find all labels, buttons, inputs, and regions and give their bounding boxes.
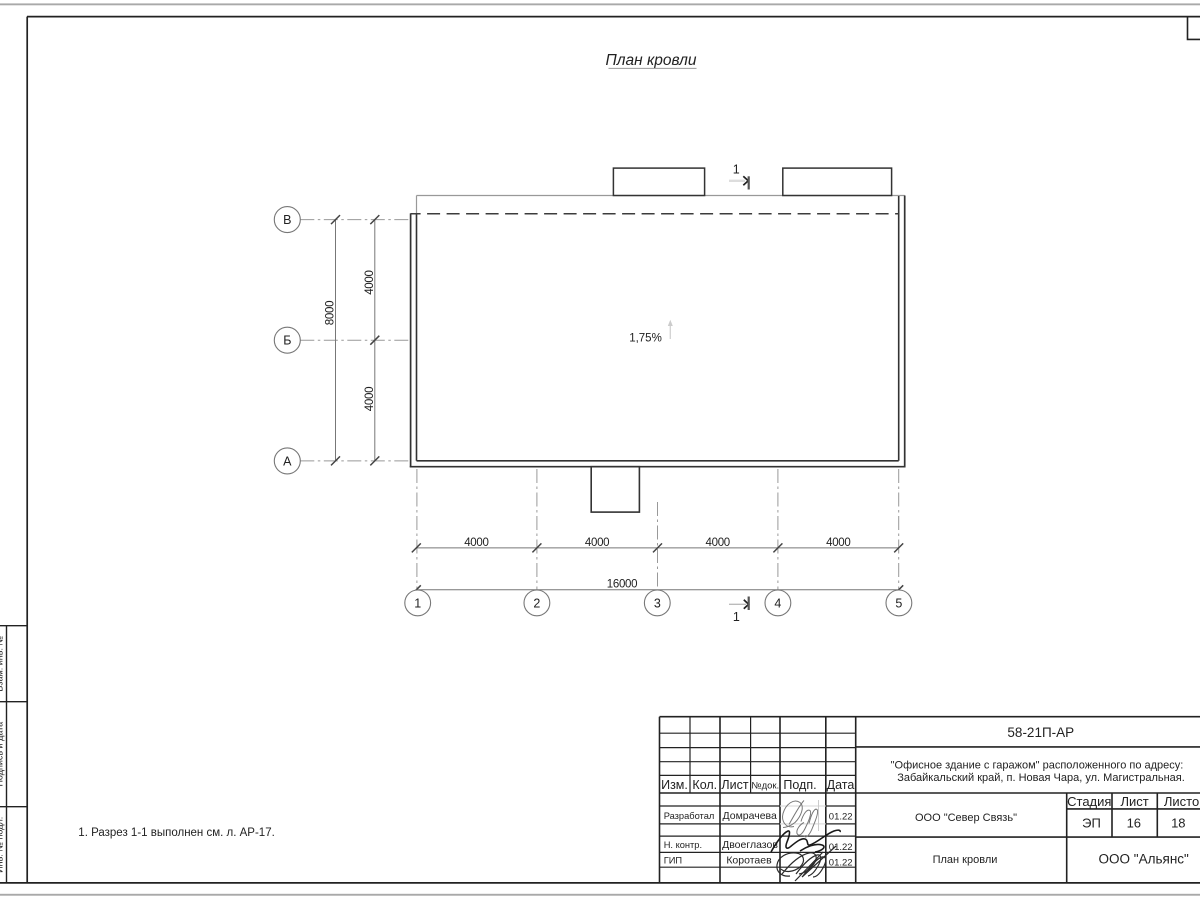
svg-text:4: 4	[774, 596, 781, 610]
svg-text:01.22: 01.22	[829, 812, 853, 823]
svg-text:План кровли: План кровли	[933, 854, 998, 866]
svg-text:В: В	[283, 213, 291, 227]
svg-text:ООО "Север Связь": ООО "Север Связь"	[915, 812, 1017, 824]
svg-text:16000: 16000	[607, 578, 637, 590]
svg-text:Забайкальский край, п. Новая Ч: Забайкальский край, п. Новая Чара, ул. М…	[897, 772, 1185, 784]
svg-text:01.22: 01.22	[829, 857, 853, 868]
svg-text:1: 1	[733, 610, 740, 624]
svg-text:1: 1	[733, 163, 740, 177]
svg-text:16: 16	[1127, 815, 1141, 830]
svg-text:Разработал: Разработал	[664, 811, 715, 821]
svg-text:4000: 4000	[464, 537, 488, 549]
svg-text:58-21П-АР: 58-21П-АР	[1007, 725, 1074, 740]
svg-text:Домрачева: Домрачева	[723, 810, 778, 822]
svg-text:Стадия: Стадия	[1067, 794, 1111, 809]
svg-text:ООО "Альянс": ООО "Альянс"	[1099, 851, 1189, 866]
svg-text:ЭП: ЭП	[1082, 815, 1101, 830]
svg-text:8000: 8000	[325, 301, 337, 325]
svg-text:Листов: Листов	[1164, 794, 1200, 809]
svg-text:4000: 4000	[826, 537, 850, 549]
svg-text:3: 3	[654, 596, 661, 610]
svg-text:№док.: №док.	[751, 781, 779, 792]
svg-text:Коротаев: Коротаев	[726, 854, 772, 866]
svg-text:Изм.: Изм.	[661, 778, 688, 792]
svg-text:Подп.: Подп.	[783, 778, 816, 792]
svg-text:4000: 4000	[706, 537, 730, 549]
svg-text:1. Разрез 1-1 выполнен см. л.: 1. Разрез 1-1 выполнен см. л. АР-17.	[78, 827, 274, 839]
svg-text:Кол.: Кол.	[692, 778, 717, 792]
svg-text:Дата: Дата	[827, 778, 855, 792]
svg-text:Б: Б	[283, 334, 291, 348]
svg-text:01.22: 01.22	[829, 842, 853, 853]
svg-text:4000: 4000	[585, 537, 609, 549]
svg-text:А: А	[283, 454, 292, 468]
svg-text:2: 2	[533, 596, 540, 610]
svg-text:5: 5	[895, 596, 902, 610]
svg-text:Лист: Лист	[1120, 794, 1148, 809]
svg-text:4000: 4000	[364, 387, 376, 411]
svg-text:Н. контр.: Н. контр.	[664, 840, 702, 850]
svg-text:План кровли: План кровли	[606, 52, 697, 69]
svg-text:4000: 4000	[364, 270, 376, 294]
svg-text:1: 1	[414, 596, 421, 610]
svg-text:Лист: Лист	[721, 778, 748, 792]
svg-text:1,75%: 1,75%	[629, 333, 662, 345]
svg-text:Подпись и дата: Подпись и дата	[0, 722, 5, 787]
svg-text:Двоеглазов: Двоеглазов	[722, 839, 778, 851]
svg-text:Взам. инв. №: Взам. инв. №	[0, 635, 5, 691]
svg-text:18: 18	[1171, 815, 1185, 830]
svg-text:ГИП: ГИП	[664, 855, 682, 865]
svg-text:"Офисное здание с гаражом" рас: "Офисное здание с гаражом" расположенног…	[891, 760, 1184, 772]
svg-text:Инв. № подл.: Инв. № подл.	[0, 817, 5, 873]
